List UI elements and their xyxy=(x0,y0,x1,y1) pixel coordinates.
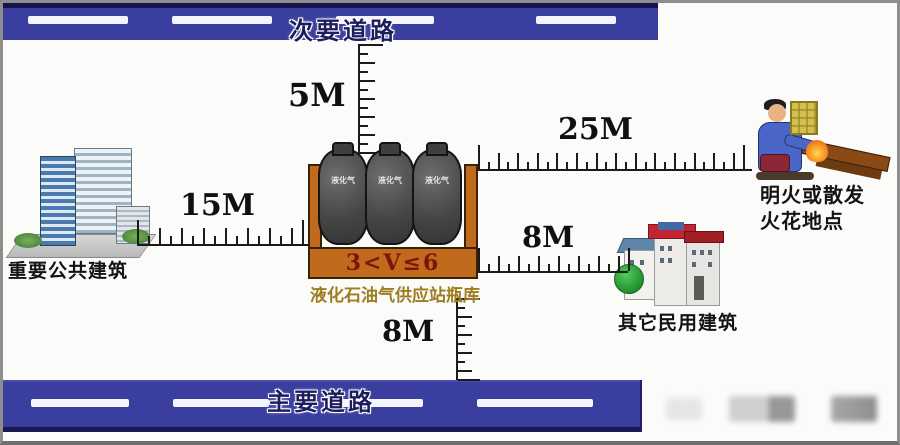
ruler-tick xyxy=(713,153,715,169)
public-building-illustration xyxy=(12,146,152,258)
ruler-tick xyxy=(360,89,368,91)
gas-cylinders: 液化气 液化气 液化气 xyxy=(321,149,463,247)
window xyxy=(692,250,696,255)
ruler-tick xyxy=(181,228,183,244)
ruler-tick xyxy=(488,264,490,271)
ruler-to-secondary-road xyxy=(358,44,384,154)
distance-label-8m-right: 8M xyxy=(522,220,574,254)
ruler-tick xyxy=(478,248,480,271)
ruler-tick xyxy=(618,256,620,271)
ruler-tick xyxy=(360,53,368,55)
gas-cylinder: 液化气 xyxy=(365,149,415,245)
ruler-tick xyxy=(360,107,368,109)
ruler-tick xyxy=(628,248,630,271)
ruler-tick xyxy=(518,256,520,271)
welder-head xyxy=(768,104,786,122)
ruler-tick xyxy=(507,162,509,169)
bush xyxy=(14,233,42,248)
ruler-tick xyxy=(547,162,549,169)
watermark xyxy=(729,396,795,422)
ruler-tick xyxy=(488,162,490,169)
secondary-road-label: 次要道路 xyxy=(289,11,397,46)
ruler-tick xyxy=(360,62,375,64)
civil-building-illustration xyxy=(620,222,722,306)
ruler-tick xyxy=(654,153,656,169)
ruler-tick xyxy=(608,264,610,271)
enclosure-base: 3<V≤6 xyxy=(308,247,478,279)
ruler-tick xyxy=(360,71,368,73)
window xyxy=(708,262,712,267)
fire-spot-label-line2: 火花地点 xyxy=(760,208,865,234)
distance-label-5m: 5M xyxy=(288,76,346,114)
ruler-tick xyxy=(556,153,558,169)
spark-flame xyxy=(806,140,828,162)
ruler-tick xyxy=(586,162,588,169)
ruler-tick xyxy=(360,116,375,118)
ruler-tick xyxy=(566,162,568,169)
ruler-tick xyxy=(527,162,529,169)
ruler-tick xyxy=(625,162,627,169)
ruler-tick xyxy=(291,228,293,244)
ruler-tick xyxy=(615,153,617,169)
ruler-tick xyxy=(743,145,745,169)
station-name-label: 液化石油气供应站瓶库 xyxy=(296,281,494,306)
ruler-tick xyxy=(645,162,647,169)
fire-spot-label: 明火或散发 火花地点 xyxy=(760,182,865,234)
secondary-road: 次要道路 xyxy=(3,3,658,40)
ruler-tick xyxy=(360,44,383,46)
distance-label-25m: 25M xyxy=(558,112,633,147)
ruler-tick xyxy=(517,153,519,169)
ruler-tick xyxy=(203,228,205,244)
ruler-tick xyxy=(568,264,570,271)
ruler-tick xyxy=(664,162,666,169)
public-building-label: 重要公共建筑 xyxy=(8,256,128,283)
ruler-tick xyxy=(360,143,368,145)
watermark xyxy=(666,398,702,420)
ruler-tick xyxy=(635,153,637,169)
window xyxy=(668,246,672,251)
window xyxy=(700,250,704,255)
watermark xyxy=(831,396,877,422)
ruler-tick xyxy=(538,256,540,271)
lane-dash xyxy=(536,16,616,24)
ruler-tick xyxy=(596,153,598,169)
cylinder-label: 液化气 xyxy=(320,175,366,186)
cylinder-label: 液化气 xyxy=(414,175,460,186)
ruler-tick xyxy=(148,236,150,244)
gas-cylinder: 液化气 xyxy=(318,149,368,245)
ruler-tick xyxy=(458,316,472,318)
ruler-tick xyxy=(458,370,472,372)
ruler-tick xyxy=(170,236,172,244)
ruler-tick xyxy=(458,334,472,336)
ruler-tick xyxy=(280,236,282,244)
ruler-tick xyxy=(458,325,465,327)
ruler-tick xyxy=(225,228,227,244)
ruler-tick xyxy=(214,236,216,244)
ruler-tick xyxy=(498,256,500,271)
ruler-tick xyxy=(360,98,375,100)
ruler-tick xyxy=(458,307,465,309)
window xyxy=(640,260,644,265)
fire-spot-label-line1: 明火或散发 xyxy=(760,182,865,208)
building-tower xyxy=(40,156,76,246)
main-road: 主要道路 xyxy=(3,380,642,432)
ruler-tick xyxy=(137,220,139,244)
ruler-tick xyxy=(576,153,578,169)
ruler-tick xyxy=(458,361,465,363)
ruler-tick xyxy=(703,162,705,169)
ruler-tick xyxy=(192,236,194,244)
ruler-tick xyxy=(674,153,676,169)
tool-kit xyxy=(760,154,790,172)
ruler-tick xyxy=(458,352,472,354)
window xyxy=(668,258,672,263)
gas-cylinder: 液化气 xyxy=(412,149,462,245)
ruler-tick xyxy=(548,264,550,271)
ruler-tick xyxy=(605,162,607,169)
cylinder-label: 液化气 xyxy=(367,175,413,186)
ruler-tick xyxy=(733,153,735,169)
ruler-tick xyxy=(723,162,725,169)
distance-label-8m-bottom: 8M xyxy=(382,314,434,348)
welding-mask xyxy=(790,101,818,135)
ruler-tick xyxy=(258,236,260,244)
ruler-tick xyxy=(537,153,539,169)
ruler-tick xyxy=(360,125,368,127)
ruler-tick xyxy=(558,256,560,271)
lane-dash xyxy=(172,16,272,24)
window xyxy=(708,250,712,255)
ruler-tick xyxy=(498,153,500,169)
roof-darkred xyxy=(684,231,724,243)
window xyxy=(660,246,664,251)
window xyxy=(692,262,696,267)
ruler-to-fire-spot xyxy=(478,145,752,171)
civil-building-label: 其它民用建筑 xyxy=(618,308,738,335)
ruler-tick xyxy=(360,134,375,136)
ruler-tick xyxy=(578,256,580,271)
welder-illustration xyxy=(750,96,890,188)
lane-dash xyxy=(173,399,269,407)
ground-shadow xyxy=(756,172,814,180)
ruler-tick xyxy=(694,153,696,169)
ruler-to-public-building xyxy=(137,220,310,246)
ruler-to-main-road xyxy=(456,298,482,380)
door xyxy=(694,276,704,300)
ruler-tick xyxy=(458,379,480,381)
ruler-tick xyxy=(360,80,375,82)
ruler-tick xyxy=(684,162,686,169)
ruler-tick xyxy=(236,236,238,244)
lane-dash xyxy=(28,16,128,24)
ruler-tick xyxy=(302,220,304,244)
ruler-tick xyxy=(598,256,600,271)
lpg-safety-distance-diagram: 次要道路 主要道路 5M 15M 25M 8M 8M 3<V≤6 液化气 液化气… xyxy=(0,0,900,445)
ruler-tick xyxy=(159,228,161,244)
volume-formula: 3<V≤6 xyxy=(346,250,441,276)
ruler-tick xyxy=(528,264,530,271)
ruler-tick xyxy=(508,264,510,271)
ruler-tick xyxy=(588,264,590,271)
ruler-tick xyxy=(269,228,271,244)
roof-panel-blue xyxy=(658,222,684,230)
ruler-tick xyxy=(247,228,249,244)
distance-label-15m: 15M xyxy=(180,188,255,223)
lane-dash xyxy=(31,399,129,407)
ruler-tick xyxy=(478,145,480,169)
main-road-label: 主要道路 xyxy=(267,382,375,417)
ruler-tick xyxy=(458,343,465,345)
lane-dash xyxy=(477,399,593,407)
window xyxy=(660,258,664,263)
